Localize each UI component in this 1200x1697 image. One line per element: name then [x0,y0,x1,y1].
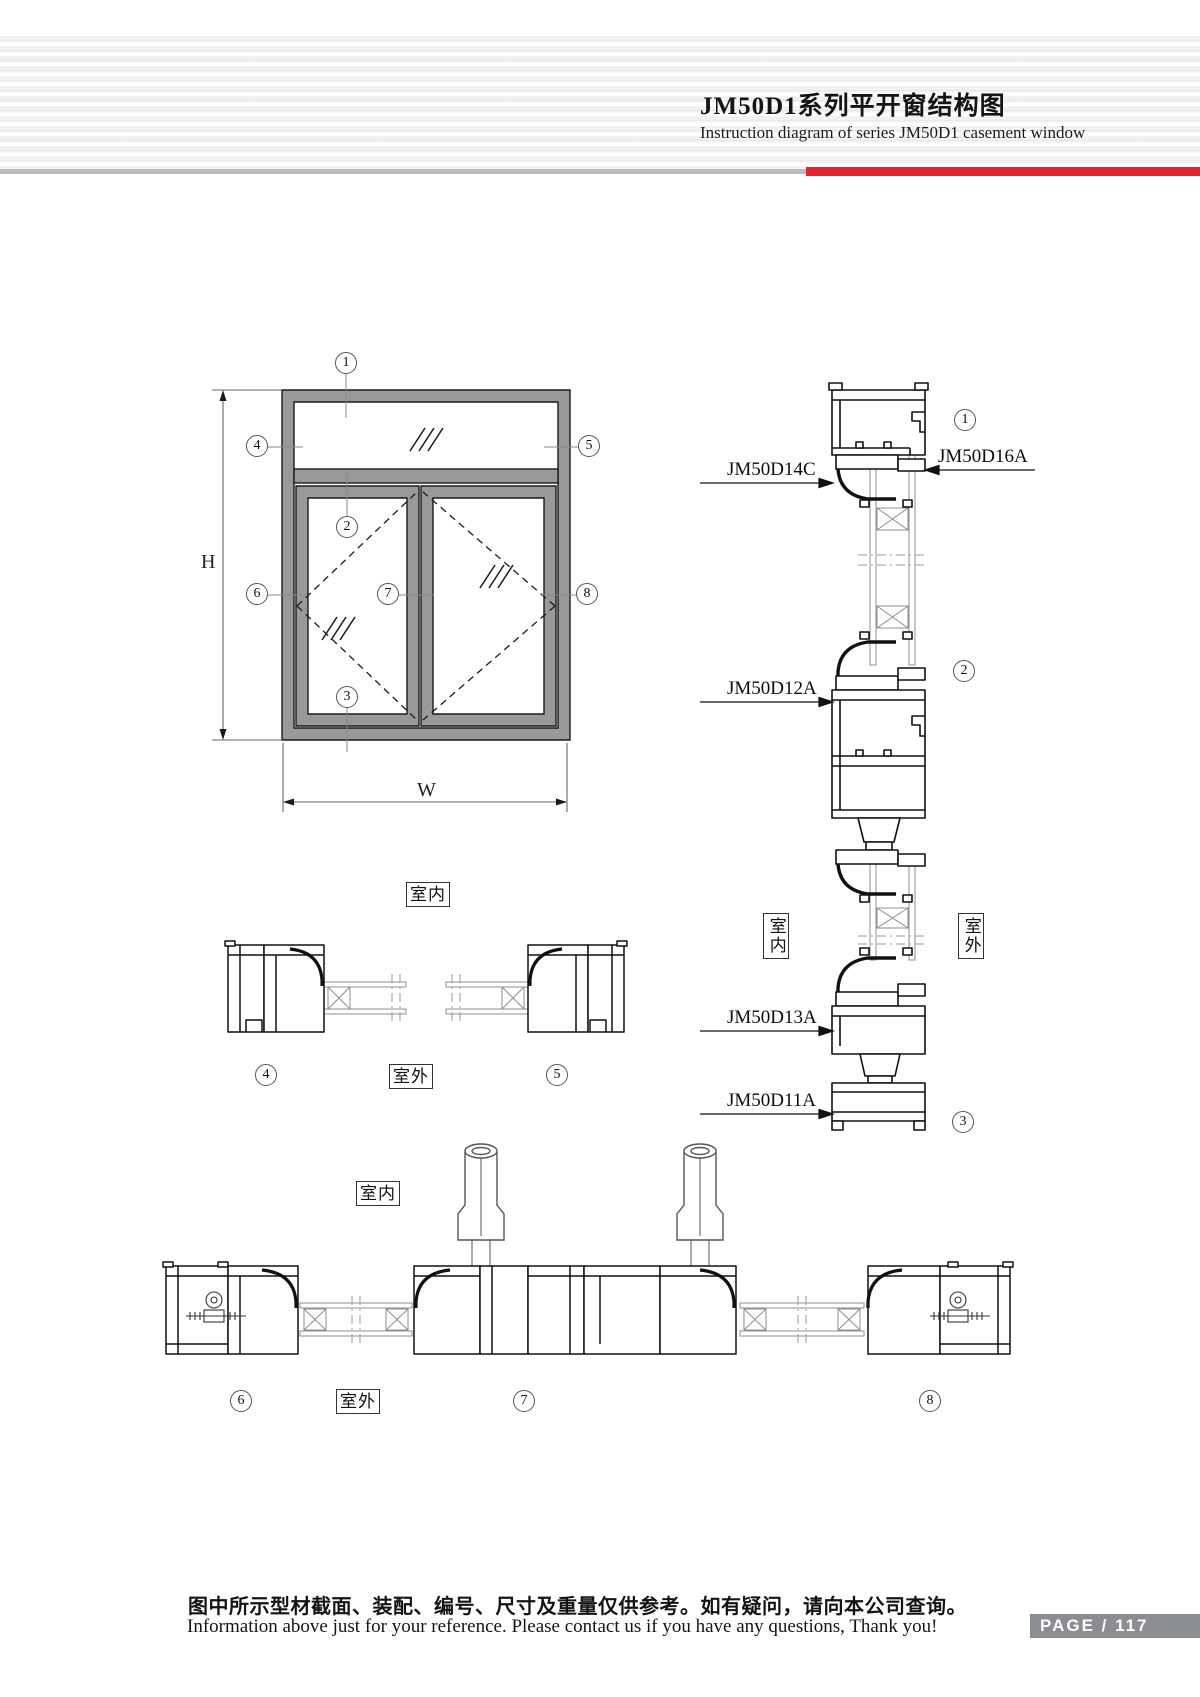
outdoor-label: 室外 [958,913,984,959]
section-callout-4: 4 [255,1064,277,1086]
indoor-label: 室内 [356,1181,400,1206]
jamb-sections-drawing [225,941,627,1032]
page-number-badge: PAGE / 117 [1030,1614,1200,1638]
bottom-section-drawing [163,1144,1013,1354]
callout-1: 1 [335,352,357,374]
callout-5: 5 [578,435,600,457]
part-label-jm50d16a: JM50D16A [938,446,1028,468]
profile-sections [225,941,627,1032]
section-callout-7: 7 [513,1390,535,1412]
glass-unit [320,982,532,1014]
line-art [0,0,1200,1697]
callout-6: 6 [246,583,268,605]
outdoor-label: 室外 [336,1389,380,1414]
section-callout-8: 8 [919,1390,941,1412]
section-callout-5: 5 [546,1064,568,1086]
catalog-page: JM50D1系列平开窗结构图 Instruction diagram of se… [0,0,1200,1697]
indoor-label: 室内 [763,913,789,959]
profile-sections [163,1262,1013,1354]
section-callout-3: 3 [952,1111,974,1133]
indoor-label: 室内 [406,882,450,907]
callout-3: 3 [336,686,358,708]
footer-note-zh: 图中所示型材截面、装配、编号、尺寸及重量仅供参考。如有疑问，请向本公司查询。 [188,1590,967,1619]
part-label-jm50d14c: JM50D14C [727,459,816,481]
handle-icon [677,1144,723,1266]
handle-icon [458,1144,504,1266]
section-callout-6: 6 [230,1390,252,1412]
footer-note-en: Information above just for your referenc… [187,1616,937,1638]
part-label-jm50d11a: JM50D11A [727,1090,816,1112]
callout-4: 4 [246,435,268,457]
part-label-jm50d13a: JM50D13A [727,1007,817,1029]
callout-7: 7 [377,583,399,605]
glass-break-lines [392,974,460,1022]
outdoor-label: 室外 [389,1064,433,1089]
callout-2: 2 [336,516,358,538]
part-label-jm50d12a: JM50D12A [727,678,817,700]
callout-8: 8 [576,583,598,605]
section-callout-1: 1 [954,409,976,431]
section-callout-2: 2 [953,660,975,682]
dim-height-label: H [201,551,215,574]
dim-width-label: W [417,779,436,802]
